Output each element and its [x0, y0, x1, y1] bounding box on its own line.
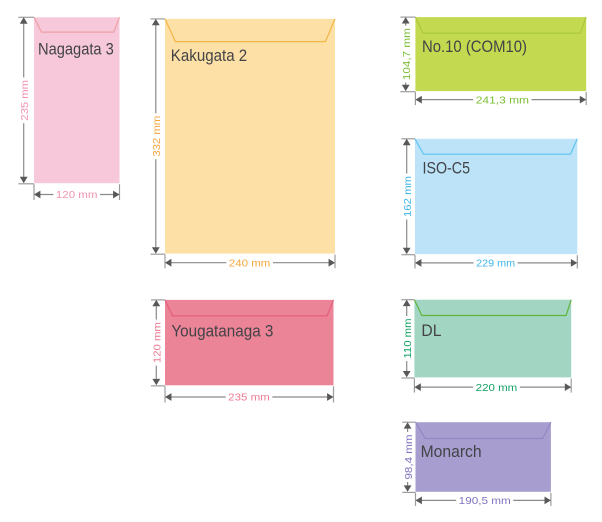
svg-text:104,7 mm: 104,7 mm: [402, 28, 413, 80]
svg-text:Kakugata 2: Kakugata 2: [171, 46, 247, 65]
svg-text:190,5 mm: 190,5 mm: [459, 496, 511, 507]
svg-text:110 mm: 110 mm: [403, 319, 414, 359]
svg-text:220 mm: 220 mm: [476, 383, 518, 394]
svg-text:Nagagata 3: Nagagata 3: [38, 40, 114, 59]
svg-text:98,4 mm: 98,4 mm: [404, 435, 415, 480]
svg-text:241,3 mm: 241,3 mm: [476, 95, 529, 106]
svg-text:162 mm: 162 mm: [403, 176, 414, 217]
svg-text:240 mm: 240 mm: [229, 258, 271, 269]
svg-text:235 mm: 235 mm: [20, 80, 31, 121]
svg-text:Monarch: Monarch: [421, 442, 482, 461]
svg-text:120 mm: 120 mm: [56, 190, 98, 201]
svg-text:Yougatanaga 3: Yougatanaga 3: [171, 322, 273, 341]
svg-text:120 mm: 120 mm: [153, 322, 164, 363]
svg-text:235 mm: 235 mm: [228, 393, 270, 404]
svg-text:No.10 (COM10): No.10 (COM10): [422, 37, 527, 56]
svg-text:332 mm: 332 mm: [152, 116, 163, 157]
svg-text:ISO-C5: ISO-C5: [423, 158, 471, 177]
svg-text:229 mm: 229 mm: [476, 259, 515, 270]
svg-text:DL: DL: [421, 321, 441, 340]
